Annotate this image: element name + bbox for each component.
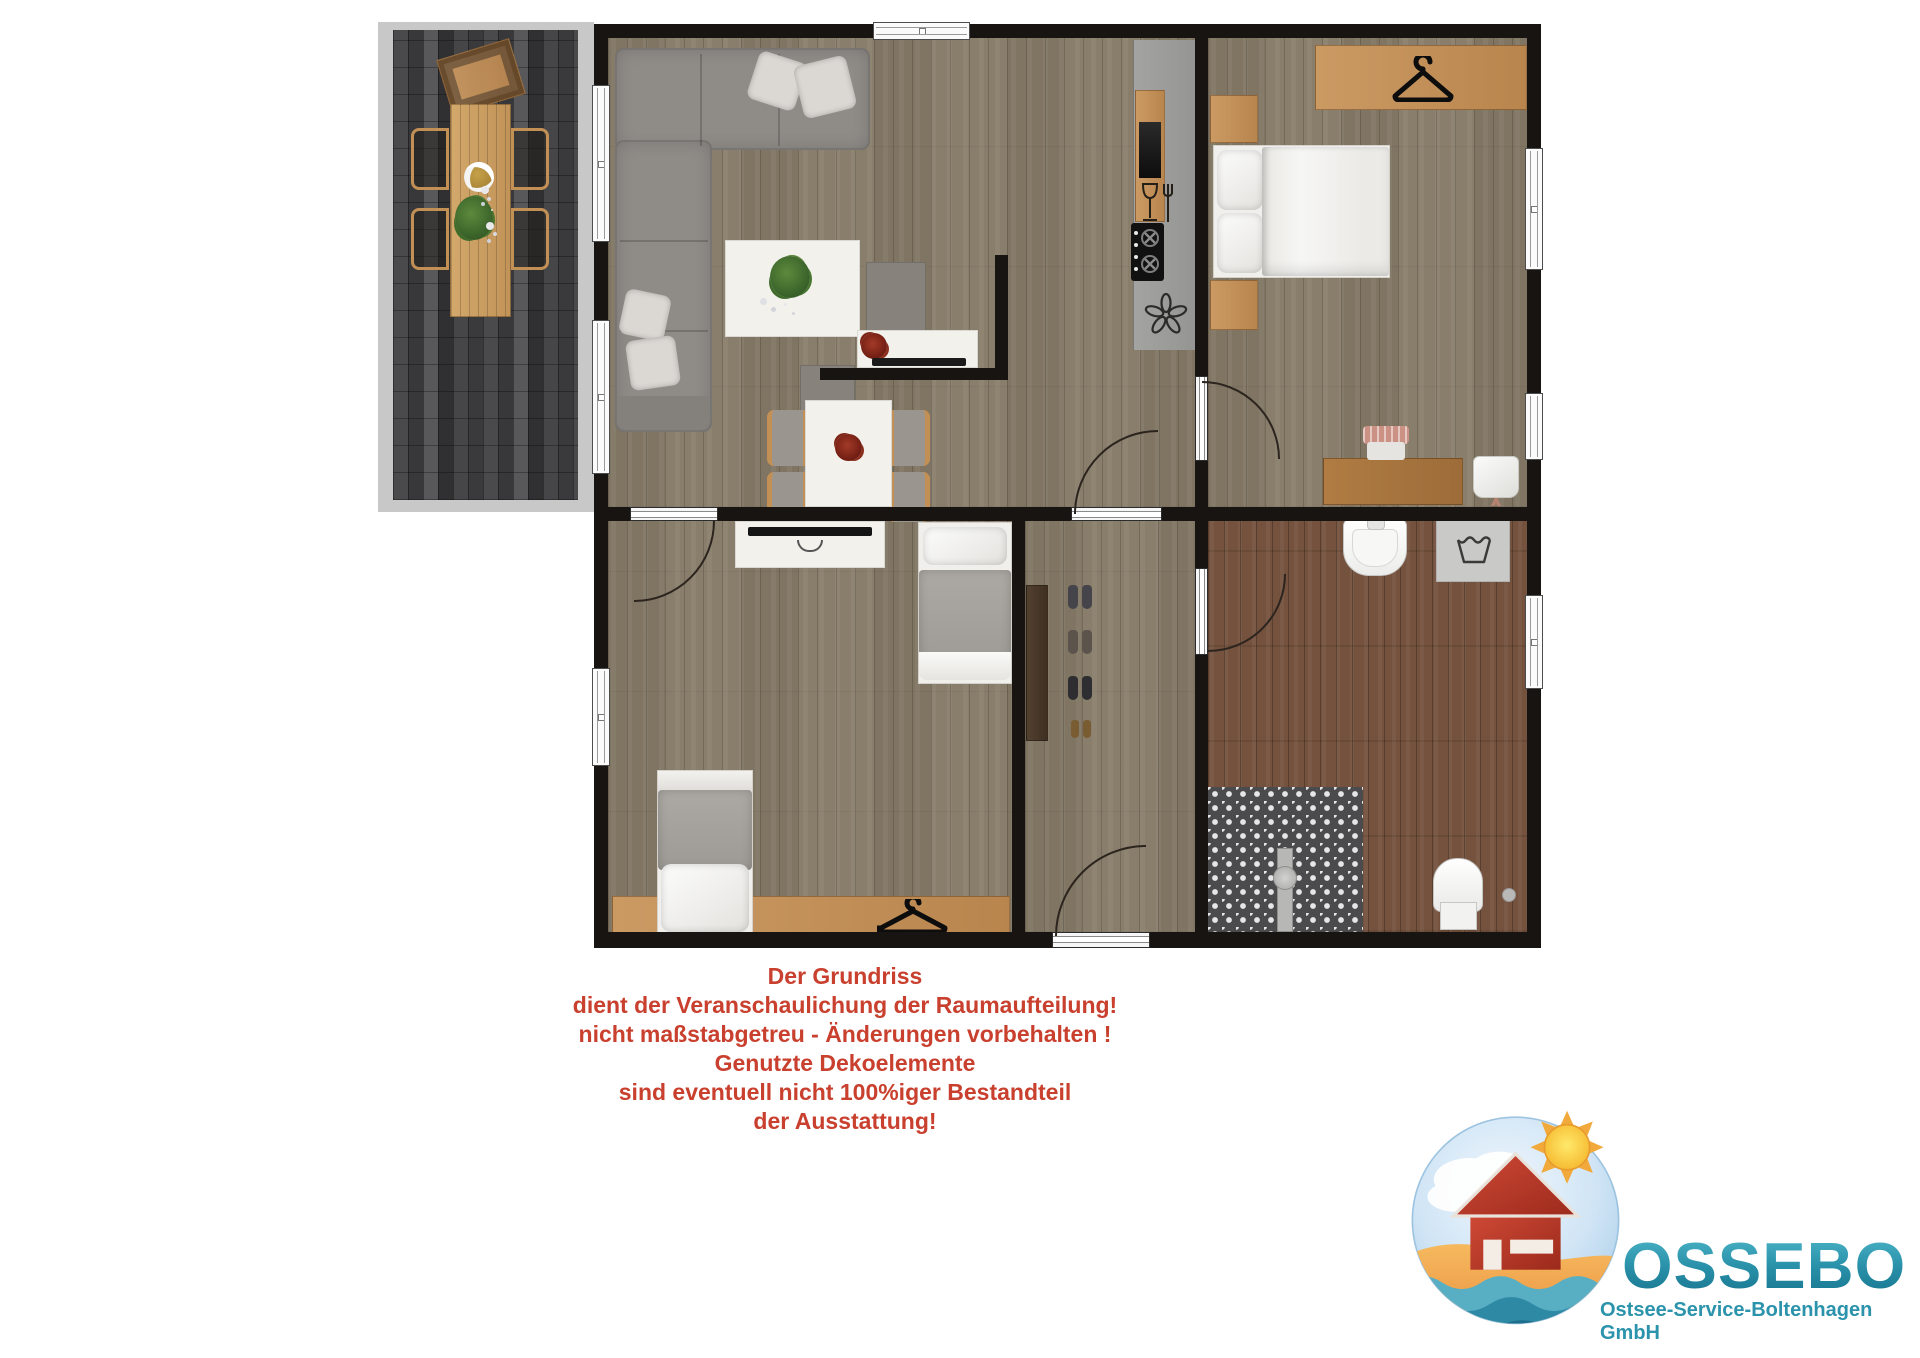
terrace-flower-sprig [481, 186, 489, 194]
shoe-pair [1068, 676, 1092, 700]
laundry-basket [1473, 456, 1519, 498]
burner [1141, 255, 1159, 273]
shoe-rack [1026, 585, 1048, 741]
sofa-seam [620, 240, 708, 242]
window-bedroom-tr-1 [1525, 148, 1543, 270]
sofa-armrest [617, 396, 709, 430]
wall-top [594, 24, 1541, 38]
sofa-pillow [625, 335, 681, 391]
dining-chair [767, 410, 807, 466]
shower-column [1277, 848, 1293, 932]
disclaimer-line: sind eventuell nicht 100%iger Bestandtei… [520, 1078, 1170, 1107]
ossebo-logo-emblem [1408, 1100, 1623, 1346]
hanger-icon [877, 899, 949, 933]
bathroom-sink [1343, 518, 1407, 576]
sofa-pillow [618, 288, 673, 343]
door-sill-bedroom-tr [1195, 376, 1208, 461]
window-living-1 [592, 85, 610, 242]
disclaimer-line: Genutzte Dekoelemente [520, 1049, 1170, 1078]
laundry-tub-icon [1455, 533, 1493, 565]
logo-subtitle: Ostsee-Service-Boltenhagen GmbH [1600, 1299, 1920, 1345]
fan-icon [1144, 293, 1188, 337]
nightstand [1210, 280, 1258, 330]
bed-pillow [1217, 213, 1263, 273]
coffee-table-plant [770, 256, 810, 298]
terrace-chair [411, 128, 449, 190]
shower-head [1273, 866, 1297, 890]
desk [1323, 458, 1463, 505]
hob-knobs [1134, 231, 1138, 235]
wine-glass-fork-icon [1138, 180, 1178, 226]
desk-chair-seat [1367, 442, 1405, 460]
tv-screen [872, 358, 966, 366]
hanger-icon [1392, 56, 1454, 102]
bed-pillow [1217, 150, 1263, 210]
window-bedroom-bl [592, 668, 610, 766]
bed-sheet-fold [919, 652, 1011, 680]
oven [1139, 122, 1161, 178]
terrace-chair [511, 128, 549, 190]
hallway-floor [1025, 521, 1195, 932]
sink-bowl [1352, 529, 1398, 567]
door-sill-bathroom [1195, 568, 1208, 655]
sofa-left-section [615, 140, 712, 432]
bed-duvet [658, 790, 752, 870]
dining-chair [890, 410, 930, 466]
disclaimer-line: nicht maßstabgetreu - Änderungen vorbeha… [520, 1020, 1170, 1049]
wall-bedroom-hall [1012, 521, 1025, 932]
bed-pillow [661, 864, 749, 932]
floor-drain [1502, 888, 1516, 902]
terrace-flower-sprig [486, 222, 494, 230]
bedroom-tv-screen [748, 527, 872, 536]
shoe-pair [1068, 585, 1092, 609]
logo-title: OSSEBO [1622, 1228, 1906, 1303]
gas-hob [1131, 223, 1164, 281]
sun-icon [1531, 1111, 1604, 1184]
floorplan-page: Der Grundriss dient der Veranschaulichun… [0, 0, 1920, 1358]
bed-pillow [923, 527, 1007, 565]
shoe-pair [1068, 630, 1092, 654]
window-bathroom [1525, 595, 1543, 689]
nightstand [1210, 95, 1258, 143]
window-living-2 [592, 320, 610, 474]
terrace-chair [511, 208, 549, 270]
sideboard-plant [861, 333, 887, 359]
door-sill-bedroom-bl [630, 507, 718, 521]
terrace-table-bowl [464, 162, 494, 192]
bed-duvet [1262, 147, 1389, 276]
window-top [873, 22, 970, 40]
disclaimer-line: dient der Veranschaulichung der Raumauft… [520, 991, 1170, 1020]
shoe-pair [1071, 720, 1091, 738]
dining-table-plant [835, 434, 862, 461]
terrace-plant [455, 196, 493, 240]
burner [1141, 229, 1159, 247]
terrace-chair [411, 208, 449, 270]
sofa-seam [700, 54, 702, 146]
wall-stub-vertical [995, 255, 1008, 380]
disclaimer-line: Der Grundriss [520, 962, 1170, 991]
door-sill-entrance [1052, 932, 1150, 948]
window-bedroom-tr-2 [1525, 393, 1543, 460]
disclaimer-text: Der Grundriss dient der Veranschaulichun… [520, 962, 1170, 1136]
door-sill-living-hall [1071, 507, 1162, 521]
toilet-tank [1440, 902, 1477, 930]
coffee-table-decor [760, 298, 767, 305]
wall-stub-horizontal [820, 368, 1008, 380]
disclaimer-line: der Ausstattung! [520, 1107, 1170, 1136]
wall-divider [594, 507, 1541, 521]
